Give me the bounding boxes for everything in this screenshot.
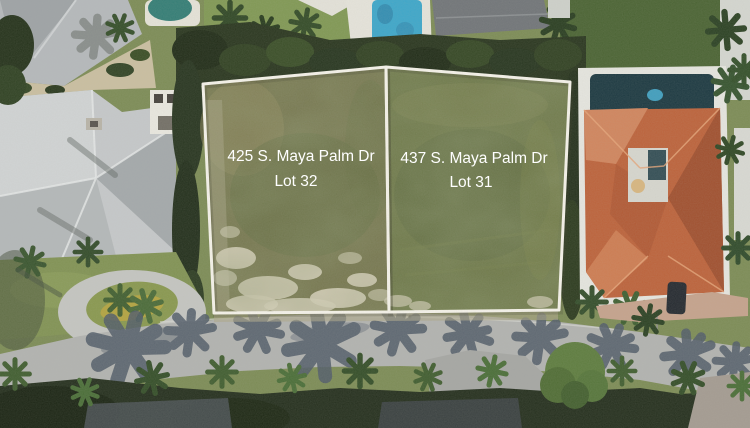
lot-32-number-label: Lot 32 (274, 173, 317, 190)
photo-grain (0, 0, 750, 428)
aerial-photo: 425 S. Maya Palm Dr Lot 32 437 S. Maya P… (0, 0, 750, 428)
lot-31-number-label: Lot 31 (449, 174, 492, 191)
lot-31-address-label: 437 S. Maya Palm Dr (400, 150, 547, 167)
aerial-lot-map: 425 S. Maya Palm Dr Lot 32 437 S. Maya P… (0, 0, 750, 428)
lot-32-address-label: 425 S. Maya Palm Dr (227, 148, 374, 165)
